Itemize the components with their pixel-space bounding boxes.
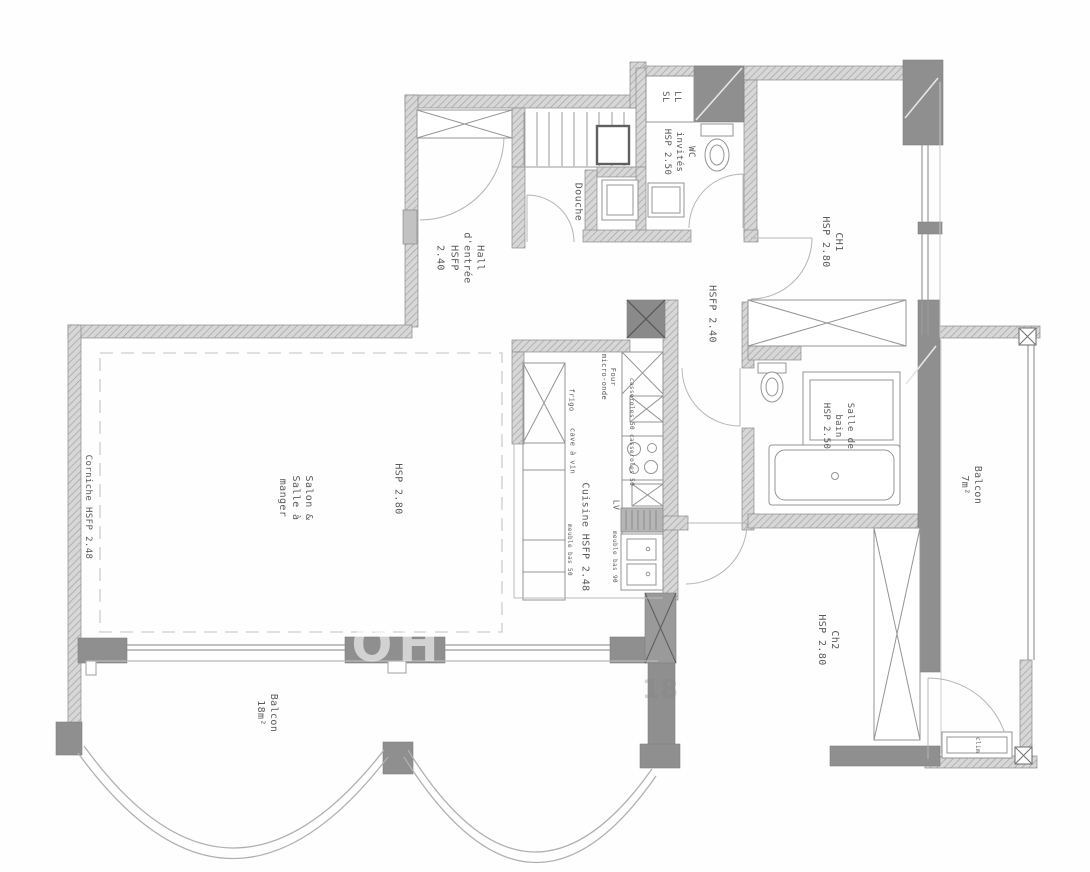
room-label-cuisine: Cuisine HSFP 2.48	[578, 482, 591, 591]
fixture-label-meuble-bas-50: meuble bas 50	[565, 524, 573, 576]
fixture-label-meuble-bas-90: meuble bas 90	[610, 531, 618, 583]
bathroom-door	[682, 368, 740, 426]
entry-door	[420, 136, 504, 220]
fixture-label-lv: LV	[610, 500, 621, 510]
lift-shaft	[597, 126, 629, 164]
room-label-hallway: HSFP 2.40	[705, 285, 718, 343]
room-label-hall: Hall d'entrée HSFP 2.40	[434, 232, 487, 283]
fixture-label-clim: clim	[973, 737, 981, 753]
fixture-label-frigo: frigo	[566, 388, 575, 411]
wc-toilet-tank	[701, 124, 733, 136]
room-label-salon: Salon & Salle à manger	[275, 476, 315, 521]
wc-door	[689, 174, 743, 228]
room-label-ch2: Ch2 HSP 2.80	[815, 614, 841, 665]
ch2-door	[686, 523, 747, 584]
ch1-door	[751, 238, 812, 299]
room-label-ll-sl: LL SL	[658, 91, 682, 103]
watermark-oh: OH	[352, 617, 445, 673]
balcony-railings	[78, 746, 656, 862]
room-label-wc: WC invités HSP 2.50	[660, 129, 696, 176]
fixture-label-casseroles: casseroles 50 casseroles 50	[627, 378, 635, 486]
staircase	[512, 112, 646, 167]
fridge	[523, 363, 565, 443]
floorplan-drawing	[0, 0, 1090, 872]
floorplan-page: Hall d'entrée HSFP 2.40 Douche WC invité…	[0, 0, 1090, 872]
room-label-balcon18: Balcon 18m²	[254, 694, 280, 733]
room-label-ch1: CH1 HSP 2.80	[819, 216, 845, 267]
fixture-label-four-micro-onde: Four micro-onde	[599, 354, 617, 400]
room-label-balcon7: Balcon 7m²	[958, 466, 984, 505]
oven	[621, 508, 663, 532]
room-label-douche: Douche	[571, 183, 584, 222]
watermark-18: 18	[642, 675, 678, 705]
fixture-label-cave-a-vin: cave à vin	[567, 428, 576, 474]
room-label-corniche: Corniche HSFP 2.48	[81, 455, 93, 560]
shower-door	[527, 195, 574, 242]
room-label-salle-de-bain: Salle de bain HSP 2.50	[819, 403, 855, 450]
room-label-salon-hsp: HSP 2.80	[391, 463, 404, 514]
